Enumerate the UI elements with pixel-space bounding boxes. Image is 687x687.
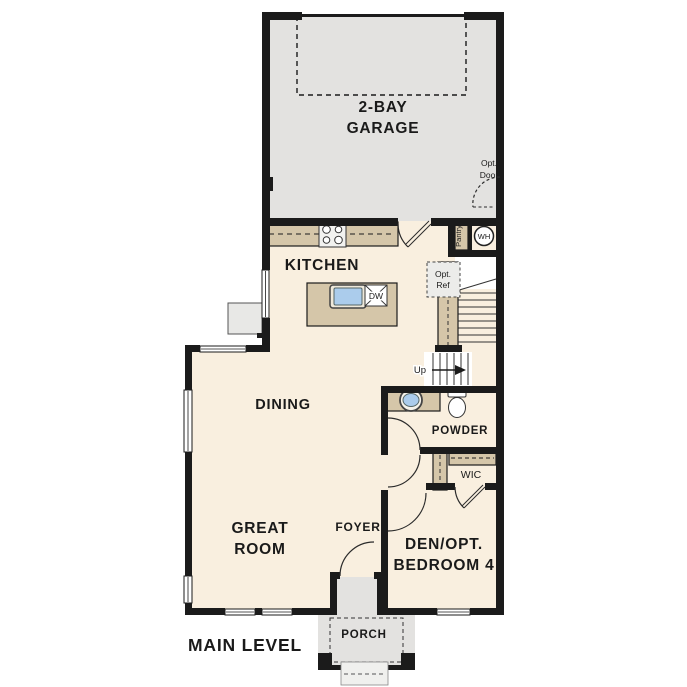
floorplan-svg: Up DW [0,0,687,687]
window-dining-top [200,346,246,352]
garage-label-1: 2-BAY [358,99,407,116]
great-room-label-2: ROOM [234,541,285,558]
dishwasher-label: DW [369,291,383,301]
garage-label-2: GARAGE [347,120,420,137]
window-left-lower [184,576,192,603]
water-heater-icon: WH [475,227,494,246]
window-kitchen-side [262,270,269,318]
opt-ref-label-1: Opt. [435,269,451,279]
window-greatroom-1 [225,609,255,615]
kitchen-label: KITCHEN [285,257,360,274]
den-label-2: BEDROOM 4 [393,557,494,574]
pantry-label: Pantry [454,225,463,247]
island-sink-icon [330,285,366,308]
den-label-1: DEN/OPT. [405,536,483,553]
dining-label: DINING [255,397,311,413]
dishwasher-icon: DW [365,285,387,306]
great-room-label-1: GREAT [231,520,288,537]
opt-door-label-1: Opt. [481,158,497,168]
opt-door-label-2: Door [480,170,499,180]
fireplace-box [228,303,262,334]
foyer-label: FOYER [335,520,380,534]
opt-ref-label-2: Ref [436,280,450,290]
window-greatroom-2 [262,609,292,615]
opt-ref-box: Opt. Ref [427,262,460,297]
powder-label: POWDER [432,425,489,437]
window-left-upper [184,390,192,452]
entry-recess-floor [337,577,377,613]
kitchen-island: DW [307,283,397,326]
water-heater-label: WH [478,232,491,241]
level-title: MAIN LEVEL [188,635,302,655]
stairs-up-label: Up [414,365,426,376]
garage-floor [266,15,497,221]
porch-label: PORCH [341,629,387,641]
wic-label: WIC [461,469,482,481]
porch [318,612,415,685]
floorplan-page: Up DW [0,0,687,687]
window-den [437,609,470,615]
